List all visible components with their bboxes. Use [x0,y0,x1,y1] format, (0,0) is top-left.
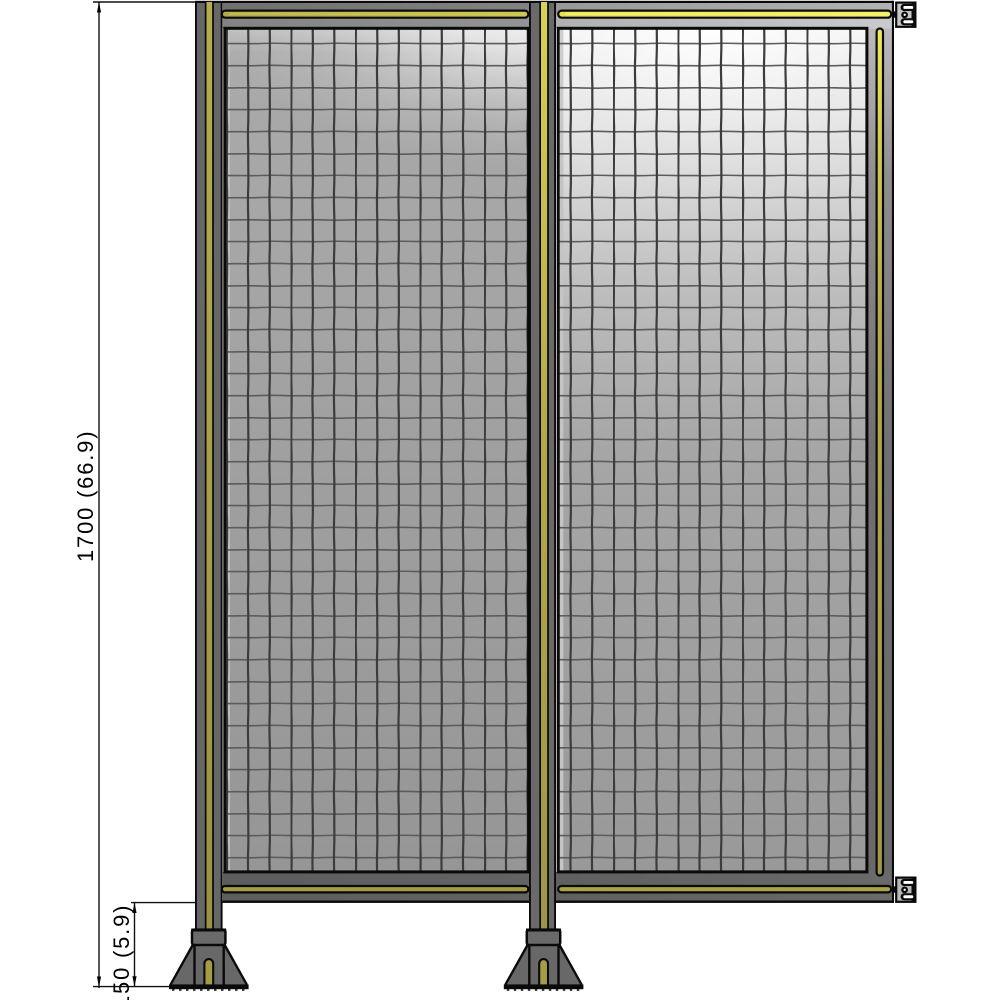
svg-text:150 (5.9): 150 (5.9) [109,904,134,1000]
svg-text:1700 (66.9): 1700 (66.9) [73,430,98,562]
